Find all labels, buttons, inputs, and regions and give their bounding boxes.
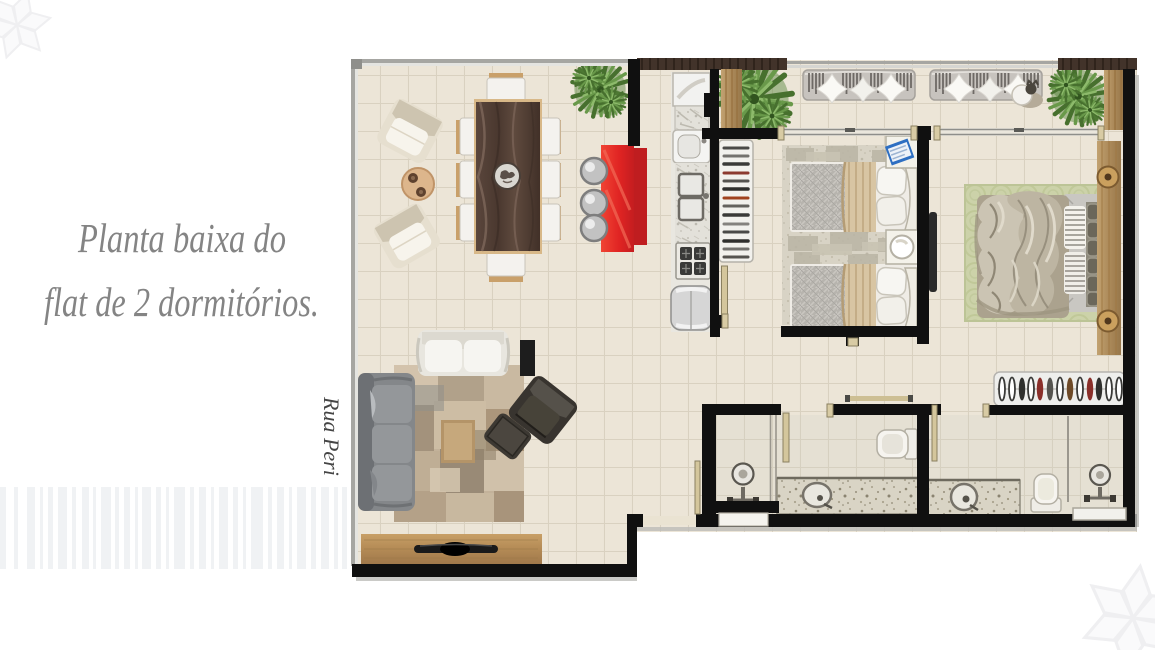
svg-text:Planta baixa do: Planta baixa do: [77, 215, 286, 261]
svg-text:Rua Peri: Rua Peri: [319, 396, 344, 476]
svg-text:flat de 2 dormitórios.: flat de 2 dormitórios.: [44, 279, 319, 325]
